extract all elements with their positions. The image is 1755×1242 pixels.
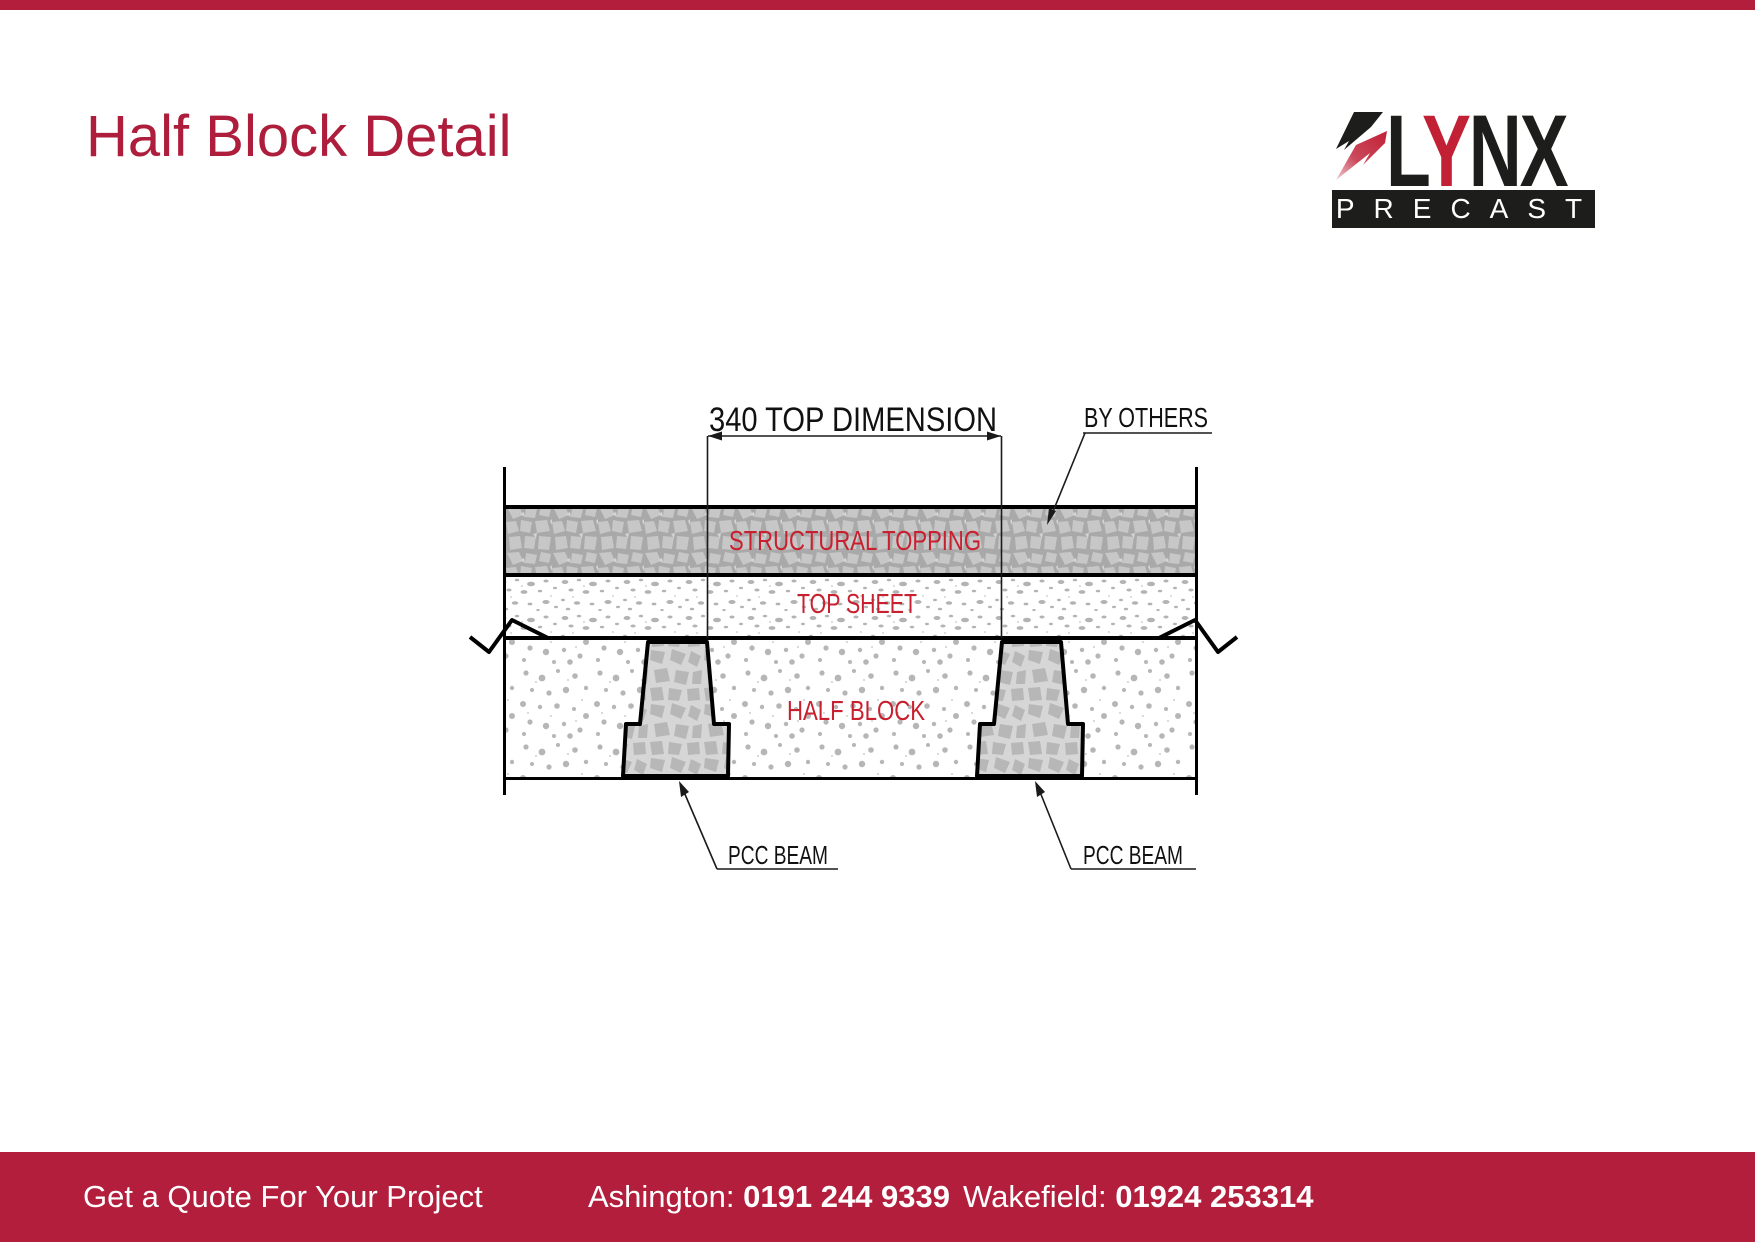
- pcc-beam-right-leader-line: [1040, 792, 1071, 869]
- ashington-phone: 0191 244 9339: [743, 1179, 950, 1214]
- top-sheet-label: TOP SHEET: [797, 588, 917, 619]
- half-block-label: HALF BLOCK: [787, 695, 925, 726]
- footer-ashington-contact: Ashington: 0191 244 9339: [588, 1181, 950, 1212]
- ashington-label: Ashington:: [588, 1179, 735, 1214]
- pcc-beam-left-label: PCC BEAM: [728, 840, 828, 870]
- wakefield-phone: 01924 253314: [1115, 1179, 1313, 1214]
- structural-topping-label: STRUCTURAL TOPPING: [729, 525, 981, 556]
- footer-cta: Get a Quote For Your Project: [83, 1181, 483, 1212]
- pcc-beam-left-leader-line: [684, 792, 717, 869]
- footer-wakefield-contact: Wakefield: 01924 253314: [963, 1181, 1313, 1212]
- pcc-beam-right-label: PCC BEAM: [1083, 840, 1183, 870]
- technical-diagram: 340 TOP DIMENSION BY OTHERS STRUCTURAL T…: [0, 0, 1755, 1242]
- by-others-leader-line: [1052, 433, 1085, 514]
- dimension-label: 340 TOP DIMENSION: [709, 401, 997, 439]
- wakefield-label: Wakefield:: [963, 1179, 1107, 1214]
- by-others-label: BY OTHERS: [1084, 402, 1208, 433]
- pcc-beam-left-arrowhead: [679, 781, 689, 797]
- pcc-beam-right-arrowhead: [1035, 781, 1045, 797]
